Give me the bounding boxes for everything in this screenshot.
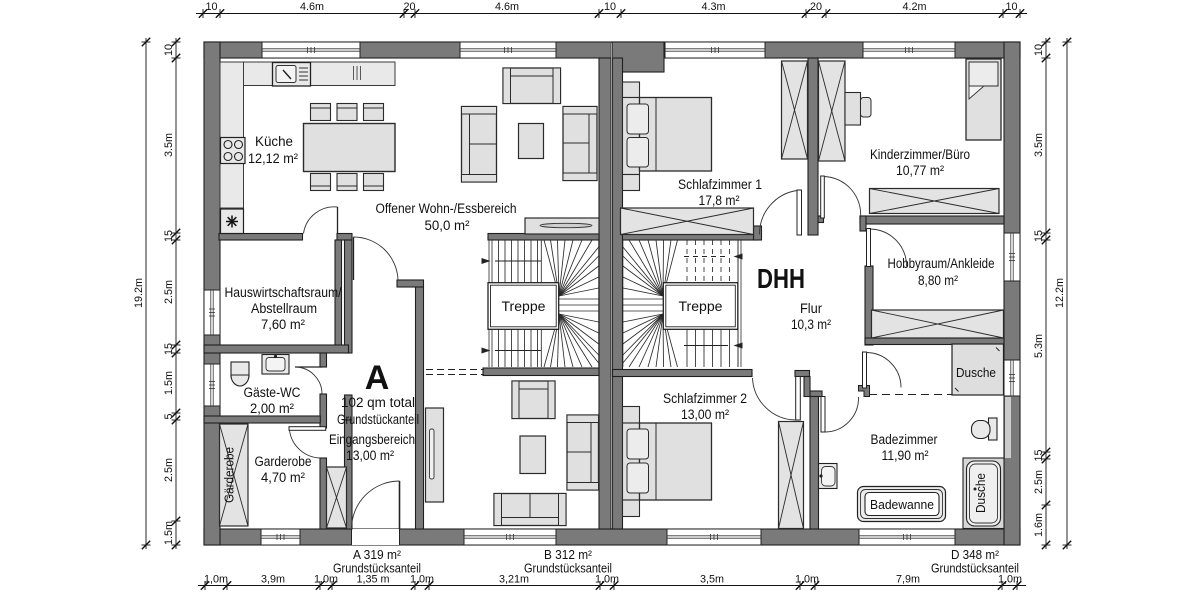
svg-text:Dusche: Dusche [974,473,988,513]
svg-text:15: 15 [163,343,175,355]
svg-text:Küche: Küche [255,134,293,149]
svg-text:Hauswirtschaftsraum/: Hauswirtschaftsraum/ [225,285,342,300]
svg-text:19.2m: 19.2m [133,278,145,308]
svg-text:10,77 m²: 10,77 m² [896,163,944,178]
svg-text:3.5m: 3.5m [163,133,175,157]
svg-text:10: 10 [1033,44,1045,56]
svg-text:13,00 m²: 13,00 m² [681,407,729,422]
svg-text:2.5m: 2.5m [163,458,175,482]
svg-text:Dusche: Dusche [956,366,996,380]
svg-text:1,0m: 1,0m [204,574,228,586]
svg-text:D 348 m²: D 348 m² [951,548,999,562]
svg-text:Garderobe: Garderobe [255,454,312,469]
svg-text:2,00 m²: 2,00 m² [250,401,295,416]
svg-text:7,9m: 7,9m [896,574,920,586]
svg-text:1,0m: 1,0m [795,574,819,586]
svg-text:7,60 m²: 7,60 m² [261,317,306,332]
svg-text:Eingangsbereich: Eingangsbereich [329,432,415,447]
svg-text:Hobbyraum/Ankleide: Hobbyraum/Ankleide [888,256,995,271]
svg-text:11,90 m²: 11,90 m² [882,448,929,463]
svg-text:Abstellraum: Abstellraum [251,301,317,316]
svg-text:Grundstücksanteil: Grundstücksanteil [333,562,421,576]
svg-text:Gärderobe: Gärderobe [223,447,237,503]
svg-text:3.5m: 3.5m [1033,133,1045,157]
svg-text:Schlafzimmer 1: Schlafzimmer 1 [678,177,762,192]
svg-text:Offener Wohn-/Essbereich: Offener Wohn-/Essbereich [376,201,517,216]
svg-text:A: A [365,359,390,397]
svg-text:12,12 m²: 12,12 m² [248,151,299,166]
svg-text:15: 15 [1033,230,1045,242]
svg-text:10: 10 [205,1,217,13]
svg-text:1.5m: 1.5m [163,371,175,395]
svg-text:10: 10 [1005,1,1017,13]
svg-text:Grundstückanteil: Grundstückanteil [337,412,419,427]
svg-text:4,70 m²: 4,70 m² [261,470,306,485]
svg-text:15: 15 [1033,449,1045,461]
svg-text:Badezimmer: Badezimmer [871,432,938,447]
svg-text:10: 10 [163,44,175,56]
svg-text:1.6m: 1.6m [1033,513,1045,537]
svg-text:Grundstücksanteil: Grundstücksanteil [931,562,1019,576]
svg-text:DHH: DHH [757,263,805,294]
svg-text:2.5m: 2.5m [1033,470,1045,494]
svg-text:5.3m: 5.3m [1033,334,1045,358]
svg-text:2.5m: 2.5m [163,280,175,304]
svg-text:1.5m: 1.5m [163,521,175,545]
svg-text:20: 20 [403,1,415,13]
svg-text:20: 20 [810,1,822,13]
svg-text:4.6m: 4.6m [495,1,519,13]
svg-text:8,80 m²: 8,80 m² [918,273,958,288]
svg-text:A 319 m²: A 319 m² [353,548,401,562]
svg-text:Schlafzimmer 2: Schlafzimmer 2 [663,391,747,406]
svg-text:12.2m: 12.2m [1054,278,1066,308]
svg-text:4.2m: 4.2m [902,1,926,13]
svg-text:Gäste-WC: Gäste-WC [244,385,301,400]
svg-text:5: 5 [163,413,175,419]
svg-text:Treppe: Treppe [502,299,546,315]
svg-text:102 qm total: 102 qm total [341,395,415,410]
svg-text:13,00 m²: 13,00 m² [346,448,394,463]
svg-text:3,5m: 3,5m [700,574,724,586]
svg-text:Badewanne: Badewanne [870,497,934,512]
svg-text:15: 15 [163,230,175,242]
svg-text:B 312 m²: B 312 m² [544,548,592,562]
svg-text:50,0 m²: 50,0 m² [425,218,471,233]
svg-text:Treppe: Treppe [679,299,723,315]
svg-text:Kinderzimmer/Büro: Kinderzimmer/Büro [870,147,970,162]
svg-text:Grundstücksanteil: Grundstücksanteil [524,562,612,576]
svg-text:4.6m: 4.6m [300,1,324,13]
svg-text:10: 10 [604,1,616,13]
svg-text:10,3 m²: 10,3 m² [791,317,831,332]
svg-text:17,8 m²: 17,8 m² [699,193,740,208]
svg-text:4.3m: 4.3m [701,1,725,13]
svg-text:3,9m: 3,9m [261,574,285,586]
svg-text:Flur: Flur [800,301,823,316]
